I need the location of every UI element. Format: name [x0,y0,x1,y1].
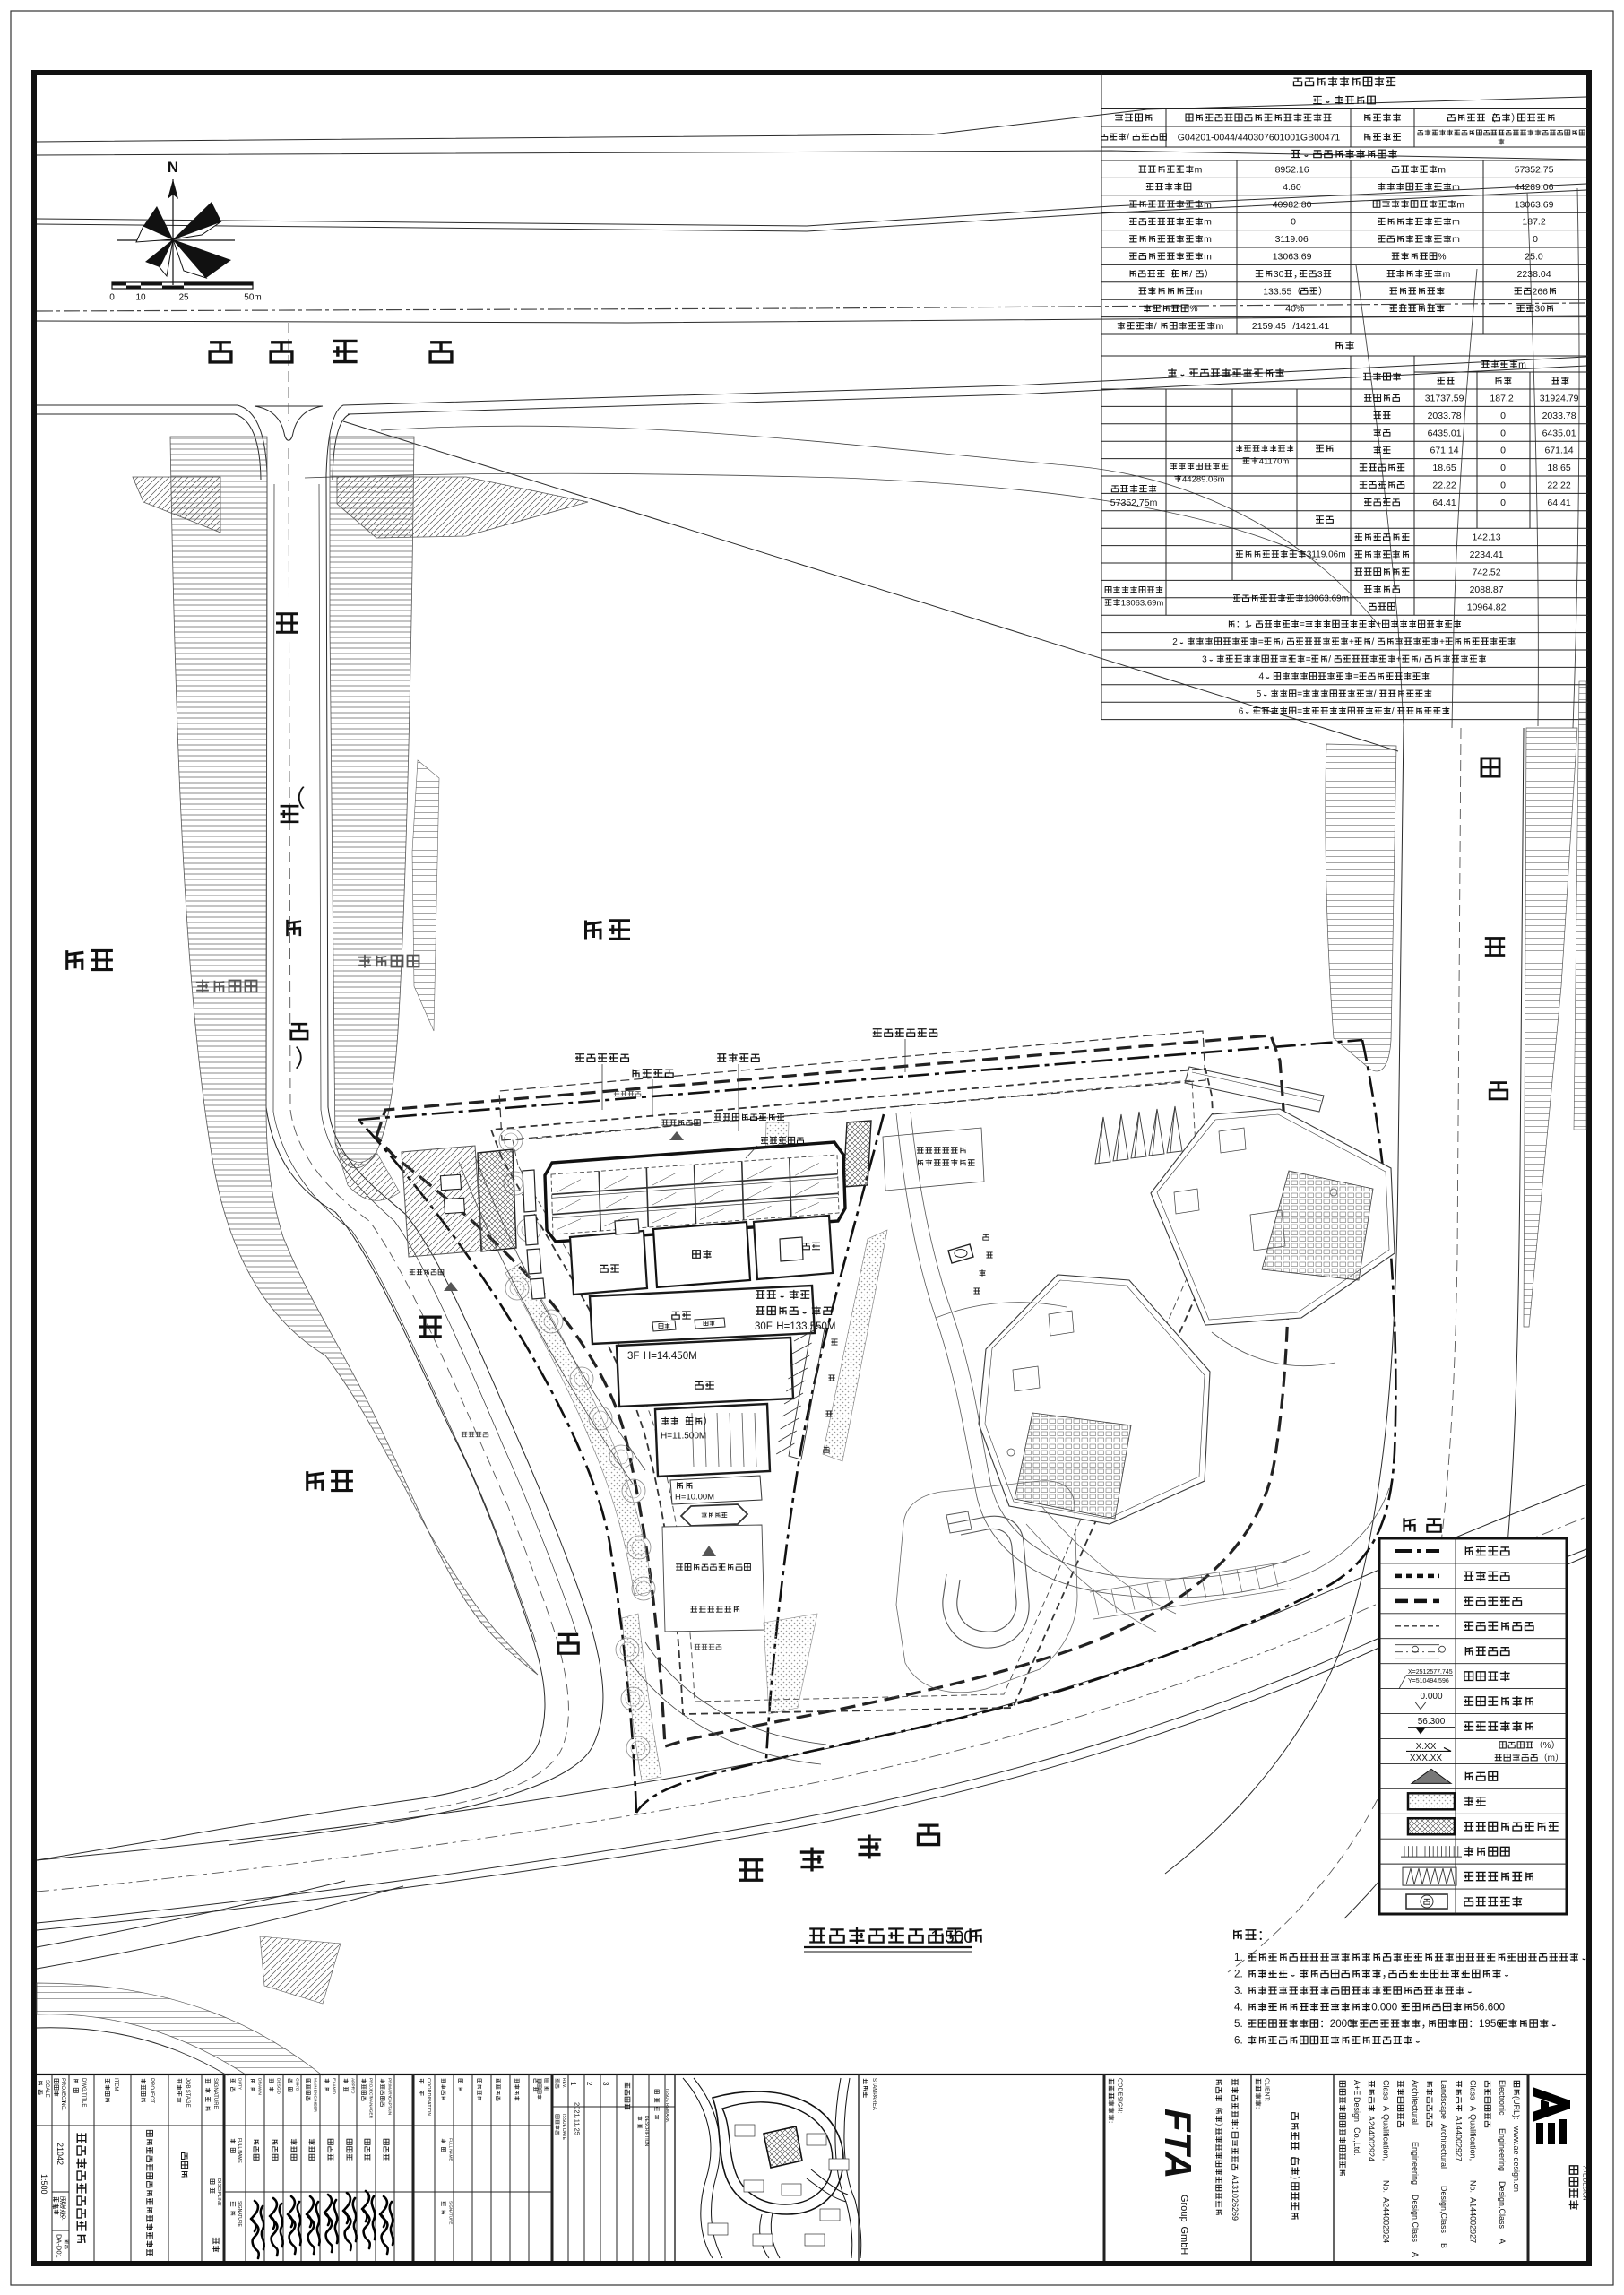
svg-text:3119.06: 3119.06 [1275,234,1309,245]
svg-text:Architectural: Architectural [1439,2124,1448,2169]
svg-text:Design,Class: Design,Class [1439,2186,1448,2234]
svg-text:A144002927: A144002927 [1454,2116,1463,2161]
svg-text:0: 0 [1500,446,1506,456]
svg-text:25: 25 [178,293,189,303]
svg-text:X.XX: X.XX [1416,1742,1437,1752]
svg-text:MANAGER: MANAGER [367,2097,373,2119]
svg-text:A244002924: A244002924 [1381,2197,1390,2243]
svg-text:SIGNATURE: SIGNATURE [212,2078,218,2109]
svg-text:DA-D01: DA-D01 [55,2234,63,2258]
svg-text:CHK'D: CHK'D [294,2078,299,2091]
svg-text:FTA: FTA [1157,2109,1199,2179]
svg-text:18.65: 18.65 [1547,463,1570,473]
svg-text:8952.16: 8952.16 [1275,165,1309,176]
svg-text:Landscape: Landscape [1439,2080,1448,2119]
svg-text:142.13: 142.13 [1473,533,1501,543]
svg-text:REMARK: REMARK [664,2103,669,2123]
svg-text:m: m [1456,199,1464,210]
svg-text:NO.: NO. [58,2210,64,2219]
svg-text:：1: ：1 [1236,620,1250,630]
svg-text:31924.79: 31924.79 [1540,394,1579,404]
svg-text:m: m [1204,217,1212,228]
svg-text:（: （ [282,784,306,811]
svg-text:m: m [1438,165,1446,176]
svg-text:X=2512577.745: X=2512577.745 [1408,1669,1453,1676]
svg-text:3119.06m: 3119.06m [1307,550,1346,560]
svg-text:：: ： [1257,1927,1271,1943]
svg-text:/: / [1281,637,1283,647]
svg-text:Y=510494.596: Y=510494.596 [1408,1678,1449,1684]
svg-text:0: 0 [1500,428,1506,438]
svg-text:NAME: NAME [237,2150,242,2163]
svg-text:3: 3 [1317,269,1323,280]
svg-text:56.600: 56.600 [1473,2002,1505,2014]
svg-text:ITEM: ITEM [113,2078,118,2091]
svg-text:：1956: ：1956 [1468,2018,1501,2030]
svg-text:Design: Design [1352,2097,1361,2122]
svg-text:0: 0 [1500,498,1506,508]
svg-text:3.: 3. [1234,1985,1243,1996]
svg-text:APPR'D: APPR'D [350,2078,355,2094]
svg-text:m: m [1204,252,1212,263]
svg-text:DESIGN: DESIGN [1582,2178,1588,2201]
svg-text:0: 0 [1533,234,1538,245]
svg-text:SIGNATURE: SIGNATURE [448,2201,453,2224]
svg-text:ENGINEER: ENGINEER [312,2090,317,2113]
svg-text:）: ） [1205,269,1214,280]
svg-text:COORDINATION: COORDINATION [426,2078,431,2116]
svg-text::: : [1254,2107,1262,2109]
svg-text:2159.45: 2159.45 [1252,321,1286,332]
svg-text:1.: 1. [1234,1952,1243,1963]
svg-text:GmbH: GmbH [1179,2227,1189,2256]
svg-text:1:500: 1:500 [930,1928,973,1947]
svg-text:0: 0 [109,293,115,303]
svg-text:A: A [1469,2106,1478,2111]
svg-text:PROJECT: PROJECT [149,2078,154,2103]
svg-text:DWG.: DWG. [81,2078,86,2093]
svg-text:m: m [1452,182,1460,193]
svg-text:（%）: （%） [1534,1740,1560,1751]
svg-text:m: m [1443,269,1451,280]
svg-text:FULL: FULL [237,2138,242,2149]
svg-text:MAIN: MAIN [312,2078,317,2090]
svg-text:/: / [1189,269,1192,280]
svg-text:SCALE: SCALE [44,2080,49,2098]
svg-text:3: 3 [1202,654,1207,664]
svg-text:=: = [1353,672,1359,682]
svg-text:PRIMARY: PRIMARY [386,2078,392,2099]
svg-text:CODESIGN:: CODESIGN: [1117,2078,1123,2113]
svg-text:Class: Class [1469,2080,1478,2100]
svg-text:671.14: 671.14 [1545,446,1574,456]
svg-text:Design,Class: Design,Class [1411,2195,1420,2243]
svg-text:/: / [1372,637,1375,647]
svg-text:（m）: （m） [1539,1753,1564,1763]
svg-text:REV.: REV. [561,2078,566,2088]
svg-text:DWG.: DWG. [58,2196,64,2210]
svg-text:3F: 3F [627,1351,639,1362]
svg-text:6.: 6. [1234,2035,1243,2047]
svg-text:2: 2 [585,2082,593,2086]
svg-text:CAPTAIN: CAPTAIN [386,2097,392,2116]
svg-text:1: 1 [63,2261,69,2265]
svg-text:+: + [1396,654,1402,664]
svg-text:Class: Class [1381,2080,1390,2100]
svg-text:Design,Class: Design,Class [1498,2181,1507,2230]
svg-text:ISSUE: ISSUE [664,2089,669,2103]
svg-text:No.: No. [1469,2180,1478,2193]
svg-text:A+E: A+E [1582,2166,1588,2178]
svg-text:13063.69m: 13063.69m [1121,598,1164,608]
svg-text:0: 0 [1500,411,1506,421]
svg-text:XXX.XX: XXX.XX [1410,1754,1442,1763]
svg-text:57352.75: 57352.75 [1515,165,1554,176]
svg-text:STAGE: STAGE [185,2090,190,2108]
svg-text:30: 30 [1534,304,1545,315]
svg-text:H=14.450M: H=14.450M [644,1351,697,1362]
svg-text:6435.01: 6435.01 [1542,428,1576,438]
svg-text:2238.04: 2238.04 [1517,269,1551,280]
svg-text:No.: No. [1381,2180,1390,2193]
svg-text:Group: Group [1179,2195,1189,2222]
svg-text:m: m [1518,359,1526,370]
svg-text:2234.41: 2234.41 [1470,550,1504,560]
svg-text:ISSUE: ISSUE [561,2114,566,2128]
svg-text:DATE: DATE [561,2128,566,2141]
svg-text:671.14: 671.14 [1430,446,1459,456]
svg-text:Architectural: Architectural [1411,2080,1420,2125]
svg-text:H=10.00M: H=10.00M [675,1492,714,1502]
svg-text:4.60: 4.60 [1283,182,1301,193]
svg-text:21042: 21042 [56,2143,65,2165]
svg-text:4.: 4. [1234,2002,1243,2014]
svg-text:NO.: NO. [60,2101,65,2111]
svg-text:STAMP: STAMP [871,2078,877,2096]
svg-text:57352.75m: 57352.75m [1110,498,1158,508]
svg-text:=: = [1306,654,1311,664]
svg-text:G04201-0044/440307601001GB0047: G04201-0044/440307601001GB00471 [1178,132,1341,143]
svg-text:PROJECT: PROJECT [60,2078,65,2103]
svg-text:0: 0 [1500,481,1506,491]
svg-text:A131026269: A131026269 [1231,2175,1240,2221]
svg-text:PROJECT: PROJECT [367,2078,373,2098]
svg-text:A144002927: A144002927 [1469,2197,1478,2243]
svg-text:1: 1 [569,2082,577,2086]
svg-text:31737.59: 31737.59 [1425,394,1464,404]
svg-text:A: A [1411,2252,1420,2257]
svg-text:）: ） [1318,286,1328,297]
svg-text:50m: 50m [244,293,261,303]
svg-text:(URL):: (URL): [1512,2096,1521,2120]
svg-text:SIGNATURE: SIGNATURE [237,2201,242,2227]
svg-text:Engineering: Engineering [1411,2142,1420,2185]
svg-text:Qualification,: Qualification, [1381,2114,1390,2161]
svg-text:2.: 2. [1234,1969,1243,1980]
svg-text:3: 3 [601,2082,609,2086]
svg-text:2088.87: 2088.87 [1470,585,1504,595]
svg-text:%: % [1189,304,1197,315]
svg-text:m: m [1204,199,1212,210]
svg-text:m: m [1204,234,1212,245]
svg-text:44289.06: 44289.06 [1515,182,1554,193]
svg-text:44289.06m: 44289.06m [1182,474,1225,484]
svg-text:m: m [1216,321,1224,332]
svg-text:30F: 30F [755,1321,773,1332]
svg-text:41170m: 41170m [1259,456,1290,466]
svg-text:/: / [1328,654,1331,664]
svg-text:2033.78: 2033.78 [1542,411,1576,421]
svg-text:/: / [1419,654,1421,664]
svg-text:m: m [1195,165,1203,176]
svg-text:+: + [1377,620,1382,630]
svg-text:DESG'D: DESG'D [275,2078,281,2095]
svg-text:1:500: 1:500 [39,2174,48,2195]
svg-text:DRAW'N: DRAW'N [256,2078,262,2095]
svg-text:742.52: 742.52 [1473,567,1501,578]
svg-text:NAME: NAME [448,2149,453,2161]
svg-text:2021.11.25: 2021.11.25 [573,2102,581,2135]
svg-text:=: = [1297,689,1302,699]
svg-text:Electronic: Electronic [1498,2080,1507,2116]
svg-text:www.ae-design.cn: www.ae-design.cn [1512,2126,1521,2192]
svg-text:18.65: 18.65 [1432,463,1456,473]
svg-text:%: % [1438,252,1446,263]
svg-text:A244002924: A244002924 [1367,2116,1376,2161]
svg-text:40%: 40% [1285,304,1304,315]
svg-text:13063.69m: 13063.69m [1304,594,1349,604]
svg-text:FULL: FULL [448,2138,453,2149]
svg-text:133.55（: 133.55（ [1263,286,1301,297]
svg-text:JOB: JOB [185,2078,190,2089]
svg-text:m: m [1452,217,1460,228]
svg-text:+: + [1349,637,1354,647]
svg-text:Qualification,: Qualification, [1469,2114,1478,2161]
svg-text:DISCIPLINE: DISCIPLINE [216,2178,221,2206]
svg-text:25.0: 25.0 [1525,252,1543,263]
svg-text:m: m [1195,286,1203,297]
svg-text:Engineering: Engineering [1498,2128,1507,2171]
svg-text:H=11.500M: H=11.500M [661,1432,706,1442]
svg-text:30: 30 [1274,269,1284,280]
svg-text:m: m [1452,234,1460,245]
svg-text:/: / [1374,689,1377,699]
svg-text:=: = [1258,637,1264,647]
svg-text:Co.,Ltd.: Co.,Ltd. [1352,2127,1361,2156]
svg-text:64.41: 64.41 [1432,498,1456,508]
svg-text:266: 266 [1533,286,1549,297]
svg-text:DUTY: DUTY [237,2078,242,2091]
svg-text:0: 0 [1500,463,1506,473]
svg-text:B: B [1439,2243,1448,2248]
svg-text:0.000: 0.000 [1420,1692,1442,1702]
svg-text:13063.69: 13063.69 [1273,252,1312,263]
svg-text:22.22: 22.22 [1432,481,1456,491]
svg-text:DESCRIPTION: DESCRIPTION [644,2116,649,2147]
svg-text:N: N [168,159,178,176]
svg-text:）: ） [295,1044,318,1071]
svg-text:TITLE: TITLE [81,2092,86,2107]
svg-text:64.41: 64.41 [1547,498,1570,508]
svg-text:EXAM'D: EXAM'D [331,2078,336,2095]
svg-text:/1421.41: /1421.41 [1292,321,1329,332]
svg-text:13063.69: 13063.69 [1515,199,1554,210]
svg-text:5: 5 [1257,689,1262,699]
svg-text:/: / [1392,707,1395,717]
svg-text:22.22: 22.22 [1547,481,1570,491]
svg-text:6: 6 [1239,707,1244,717]
svg-text:4: 4 [1259,672,1265,682]
svg-text:0.000: 0.000 [1371,2002,1397,2014]
svg-text::: : [1107,2121,1115,2123]
svg-text:2: 2 [1172,637,1178,647]
svg-text:56.300: 56.300 [1418,1717,1446,1727]
svg-text:187.2: 187.2 [1522,217,1545,228]
svg-text:+: + [1439,637,1445,647]
svg-text:40982.80: 40982.80 [1273,199,1312,210]
svg-text:）: ） [704,1416,713,1427]
svg-text:A: A [1498,2239,1507,2244]
svg-text:A+E: A+E [1352,2080,1361,2095]
svg-text:10964.82: 10964.82 [1467,602,1507,612]
svg-text:H=133.550M: H=133.550M [776,1321,835,1332]
svg-text:187.2: 187.2 [1490,394,1513,404]
svg-text:CLIENT:: CLIENT: [1264,2078,1270,2101]
svg-text:=: = [1300,620,1305,630]
svg-text:：2000: ：2000 [1319,2018,1352,2030]
svg-text:/: / [1154,321,1157,332]
svg-text:10: 10 [135,293,146,303]
svg-text:5.: 5. [1234,2018,1243,2030]
svg-text:AREA: AREA [871,2095,877,2109]
svg-text:/: / [1127,133,1129,143]
svg-text:A: A [1381,2106,1390,2111]
svg-text:6435.01: 6435.01 [1428,428,1462,438]
svg-text:=: = [1297,707,1302,717]
svg-text:2033.78: 2033.78 [1428,411,1462,421]
svg-text:0: 0 [1291,217,1296,228]
